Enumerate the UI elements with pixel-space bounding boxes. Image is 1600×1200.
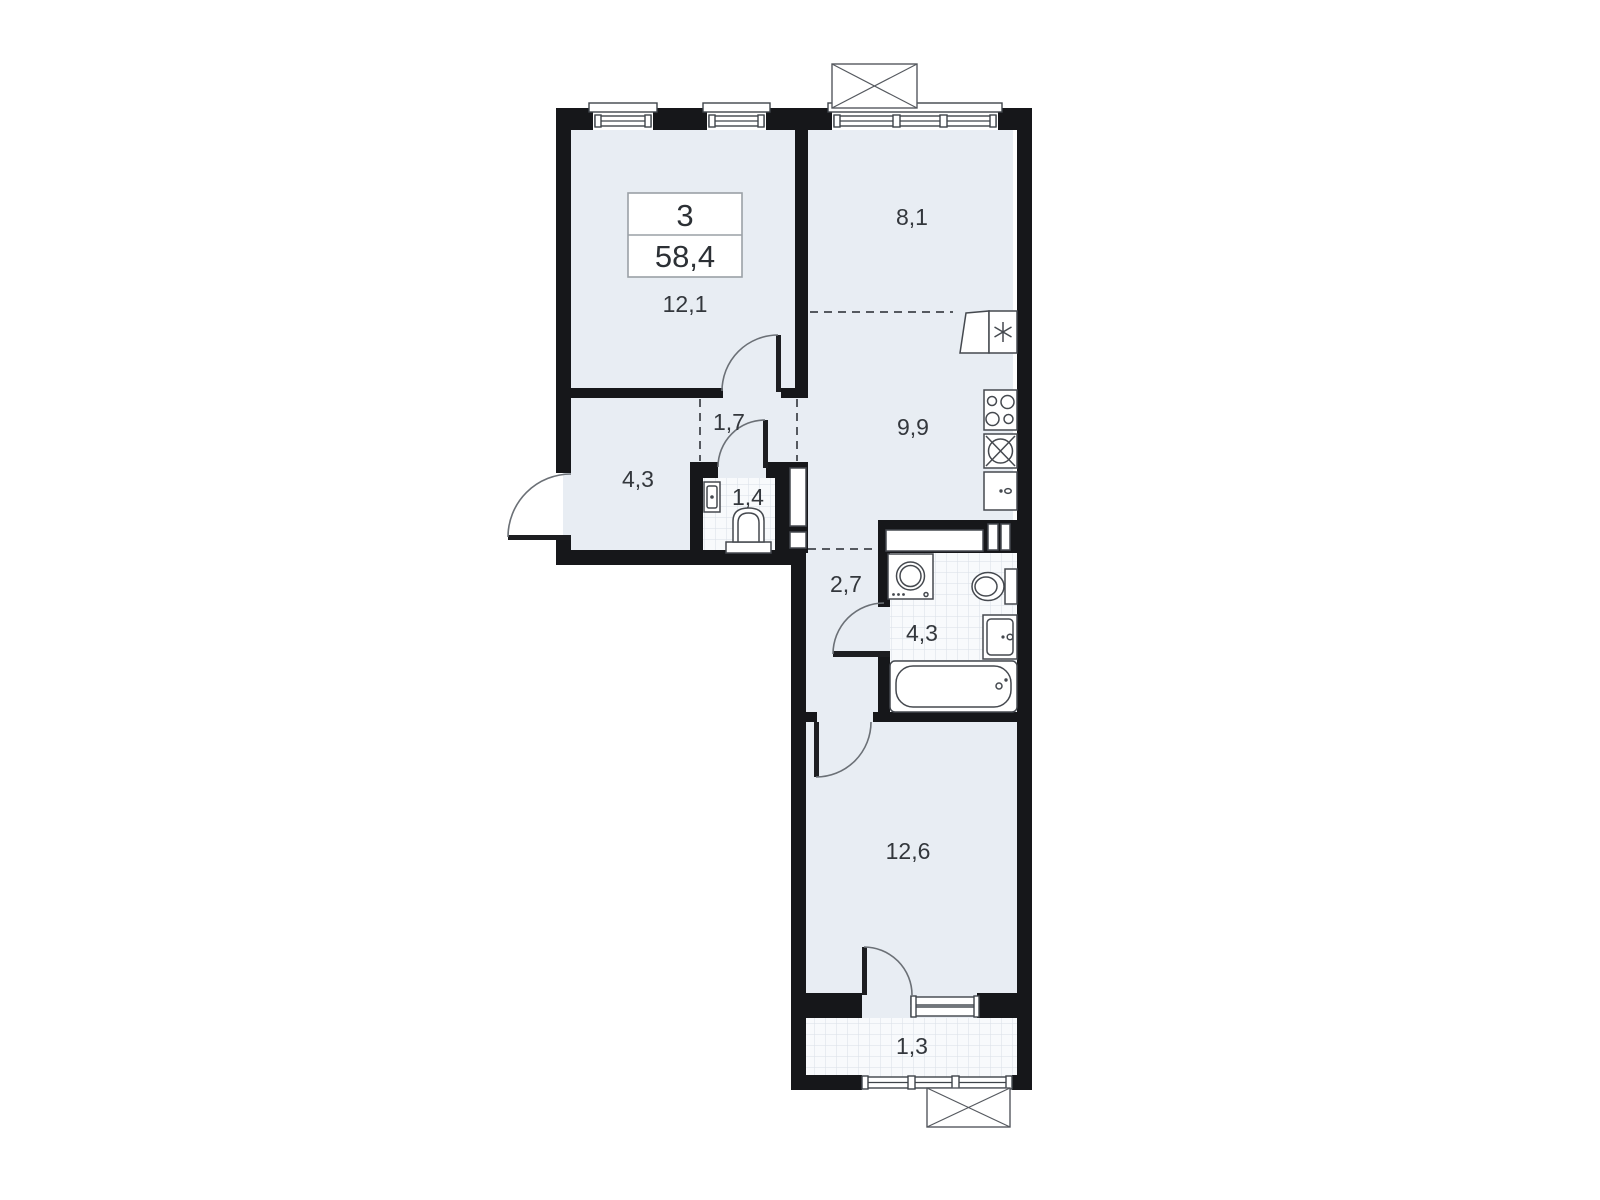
balcony-glazing [862,1076,1012,1089]
label-corridor: 2,7 [830,571,862,597]
label-balcony: 1,3 [896,1033,928,1059]
washing-machine-icon [888,554,933,599]
wall-living-kitchen [795,130,808,398]
label-entry-hallway: 4,3 [622,466,654,492]
wall-living-bottom [571,388,723,398]
label-bathroom: 4,3 [906,620,938,646]
wall-balcony-bottom-left [791,1075,862,1090]
unit-info-box: 3 58,4 [628,193,742,277]
shaft-slot-tall [790,468,806,526]
wall-left-upper [556,108,571,473]
wall-top-3 [766,108,832,130]
bathtub-icon [890,661,1017,712]
bathroom-shaft-slot-2 [1001,524,1010,550]
fridge-icon [960,311,1017,353]
wall-bedroom-top-right [873,712,1032,722]
wall-bathroom-left-lower [878,652,890,712]
label-kitchen: 9,9 [897,414,929,440]
bottom-balcony-box [927,1088,1010,1127]
wall-right [1017,108,1032,1090]
wall-bedroom-bottom-left [791,993,862,1018]
shaft-slot-short [790,532,806,548]
wall-right-balcony-corner [1012,1075,1032,1090]
wall-top-2 [653,108,707,130]
label-wc: 1,4 [732,484,764,510]
label-living-room: 12,1 [663,291,708,317]
label-room-top-right: 8,1 [896,204,928,230]
wall-bedroom-top-left [791,712,817,722]
wall-wc-left [690,462,703,550]
label-bedroom: 12,6 [886,838,931,864]
kitchen-cabinet-faucet-icon [984,472,1017,510]
window-living-1 [589,103,657,130]
window-living-2 [703,103,770,130]
unit-room-count: 3 [676,198,693,233]
floor-plan-drawing: 3 58,4 12,1 8,1 1,7 4,3 1,4 9,9 2,7 4,3 … [0,0,1600,1200]
unit-total-area: 58,4 [655,239,715,274]
bathroom-sink-icon [983,615,1017,659]
entrance-door [508,474,571,540]
window-bedroom-balcony [911,996,979,1017]
bathroom-duct [886,530,983,551]
kitchen-sink-icon [984,434,1017,468]
top-balcony-box [832,64,917,108]
stove-icon [984,390,1017,430]
bathroom-shaft-slot-1 [988,524,998,550]
wall-living-bottom-stub [781,388,808,398]
floor-plan-page: 3 58,4 12,1 8,1 1,7 4,3 1,4 9,9 2,7 4,3 … [0,0,1600,1200]
label-hall: 1,7 [713,409,745,435]
wall-bedroom-bottom-right [977,993,1032,1018]
bathroom-toilet-icon [972,569,1017,604]
wc-sink-icon [704,482,720,512]
